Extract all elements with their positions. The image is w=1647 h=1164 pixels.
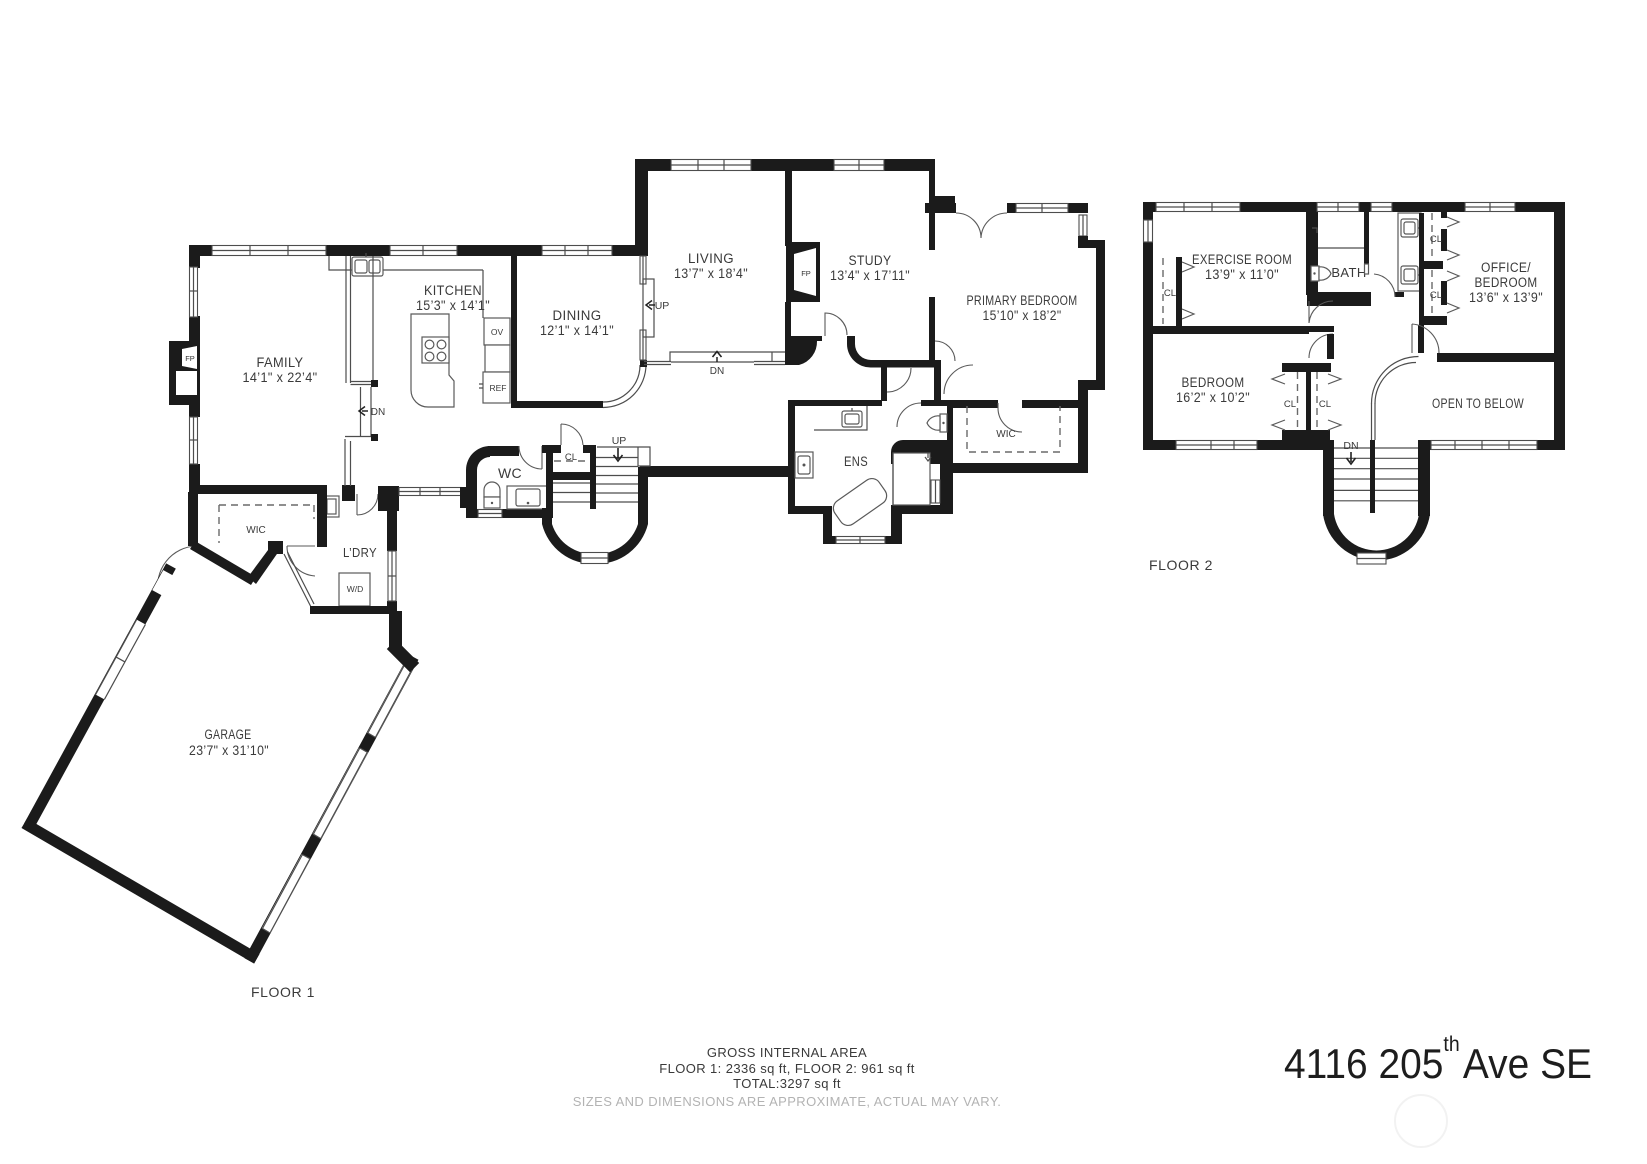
svg-text:CL: CL — [1430, 290, 1442, 301]
svg-text:DN: DN — [371, 407, 385, 418]
svg-text:BATH: BATH — [1331, 265, 1366, 280]
svg-text:OFFICE/: OFFICE/ — [1481, 260, 1531, 275]
svg-text:15’3" x 14’1": 15’3" x 14’1" — [416, 298, 490, 313]
svg-text:FLOOR 1: 2336 sq ft, FLOOR 2:: FLOOR 1: 2336 sq ft, FLOOR 2: 961 sq ft — [659, 1061, 914, 1076]
svg-text:DINING: DINING — [553, 308, 602, 323]
svg-text:UP: UP — [612, 435, 627, 447]
svg-text:FLOOR 2: FLOOR 2 — [1149, 557, 1213, 573]
svg-text:TOTAL:3297 sq ft: TOTAL:3297 sq ft — [733, 1076, 841, 1091]
svg-text:OV: OV — [491, 327, 504, 337]
svg-text:FLOOR 1: FLOOR 1 — [251, 984, 315, 1000]
svg-text:4116 205th Ave SE: 4116 205th Ave SE — [1284, 1033, 1592, 1087]
svg-text:15’10" x 18’2": 15’10" x 18’2" — [983, 308, 1062, 323]
svg-text:UP: UP — [655, 300, 670, 312]
svg-text:13’7" x 18’4": 13’7" x 18’4" — [674, 266, 748, 281]
svg-text:CL: CL — [1430, 234, 1442, 245]
svg-text:BEDROOM: BEDROOM — [1475, 275, 1538, 290]
svg-text:CL: CL — [1319, 399, 1331, 410]
svg-text:CL: CL — [565, 452, 577, 463]
svg-text:WIC: WIC — [996, 429, 1015, 440]
svg-text:KITCHEN: KITCHEN — [424, 283, 482, 298]
svg-text:W/D: W/D — [347, 584, 364, 594]
svg-text:ENS: ENS — [844, 454, 868, 469]
svg-text:13’4" x 17’11": 13’4" x 17’11" — [830, 268, 910, 283]
svg-text:13’9" x 11’0": 13’9" x 11’0" — [1205, 267, 1279, 282]
svg-text:13’6" x 13’9": 13’6" x 13’9" — [1469, 290, 1543, 305]
svg-text:16’2" x 10’2": 16’2" x 10’2" — [1176, 390, 1250, 405]
svg-text:GARAGE: GARAGE — [205, 727, 252, 742]
svg-text:GROSS INTERNAL AREA: GROSS INTERNAL AREA — [707, 1045, 867, 1060]
svg-text:STUDY: STUDY — [849, 253, 892, 268]
svg-text:CL: CL — [1164, 288, 1176, 299]
svg-text:FP: FP — [185, 354, 195, 363]
svg-text:DN: DN — [710, 366, 724, 377]
svg-text:REF: REF — [490, 383, 507, 393]
svg-text:PRIMARY BEDROOM: PRIMARY BEDROOM — [967, 293, 1078, 308]
svg-text:WIC: WIC — [246, 525, 265, 536]
svg-text:12’1" x 14’1": 12’1" x 14’1" — [540, 323, 614, 338]
svg-text:14’1" x 22’4": 14’1" x 22’4" — [243, 370, 318, 385]
svg-text:23’7" x 31’10": 23’7" x 31’10" — [189, 743, 269, 758]
svg-text:EXERCISE ROOM: EXERCISE ROOM — [1192, 252, 1292, 267]
svg-text:SIZES AND DIMENSIONS ARE APPRO: SIZES AND DIMENSIONS ARE APPROXIMATE, AC… — [573, 1094, 1002, 1109]
svg-text:OPEN TO BELOW: OPEN TO BELOW — [1432, 396, 1524, 411]
svg-text:FP: FP — [801, 269, 811, 278]
svg-text:L’DRY: L’DRY — [343, 546, 377, 560]
svg-text:WC: WC — [498, 465, 522, 481]
svg-text:BEDROOM: BEDROOM — [1182, 375, 1245, 390]
svg-text:LIVING: LIVING — [688, 251, 734, 266]
svg-text:DN: DN — [1343, 440, 1358, 452]
svg-text:CL: CL — [1284, 399, 1296, 410]
svg-text:FAMILY: FAMILY — [257, 355, 304, 370]
